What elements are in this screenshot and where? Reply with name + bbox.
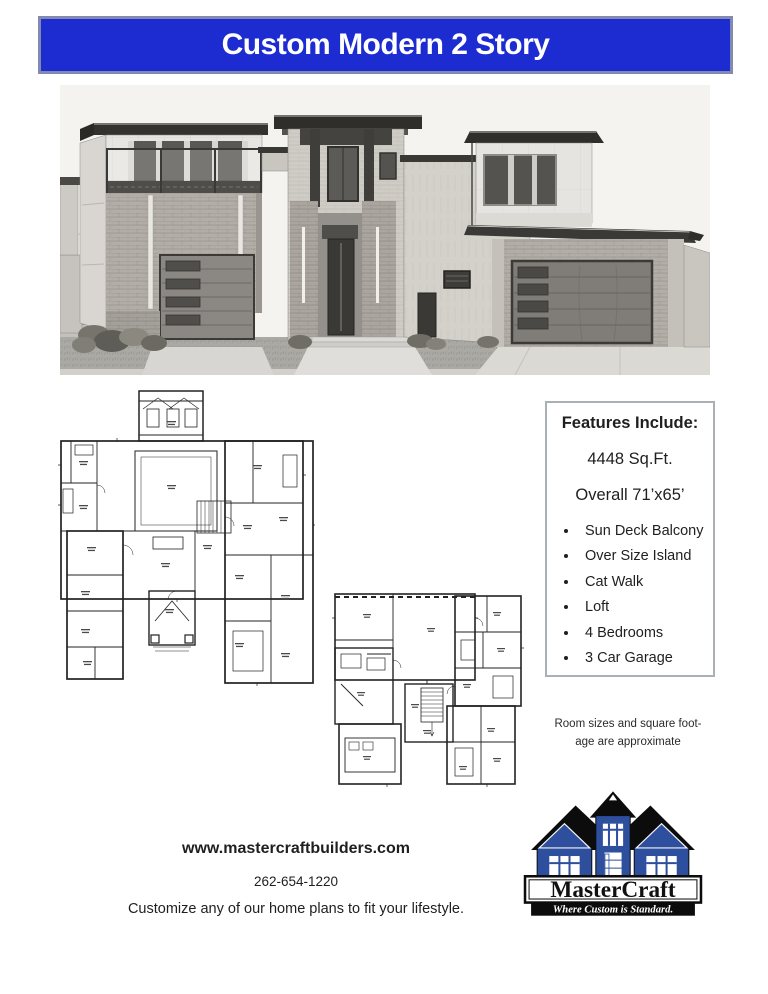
- balcony-railing: [106, 149, 262, 193]
- right-upper-story: [464, 131, 604, 227]
- feature-item: Over Size Island: [579, 549, 705, 565]
- garage-apron-left: [142, 347, 274, 375]
- house-rendering-image: [60, 85, 710, 375]
- logo-house-icon: [531, 791, 695, 882]
- feature-item: 3 Car Garage: [579, 651, 705, 667]
- tagline: Customize any of our home plans to fit y…: [96, 901, 496, 917]
- entry-door: [328, 239, 354, 335]
- feature-item: 4 Bedrooms: [579, 626, 705, 642]
- features-panel: Features Include: 4448 Sq.Ft. Overall 71…: [545, 401, 715, 677]
- features-list: Sun Deck Balcony Over Size Island Cat Wa…: [555, 524, 705, 667]
- website-text: www.mastercraftbuilders.com: [96, 840, 496, 858]
- logo-name-text: MasterCraft: [550, 877, 675, 903]
- front-walk: [294, 347, 432, 375]
- first-floor-plan-image: [57, 385, 315, 690]
- flyer-page: { "banner": { "title": "Custom Modern 2 …: [0, 0, 768, 994]
- overall-dimensions: Overall 71’x65’: [555, 486, 705, 505]
- left-wing: [60, 123, 268, 339]
- feature-item: Cat Walk: [579, 575, 705, 591]
- mastercraft-logo: MasterCraft Where Custom is Standard.: [523, 786, 703, 918]
- logo-slogan-text: Where Custom is Standard.: [553, 905, 673, 916]
- garage-wing: [464, 225, 710, 347]
- double-garage-door: [512, 261, 652, 343]
- phone-number: 262-654-1220: [96, 874, 496, 889]
- second-floor-plan-image: [327, 588, 527, 788]
- contact-block: www.mastercraftbuilders.com 262-654-1220…: [96, 840, 496, 917]
- left-garage-door: [160, 255, 254, 339]
- logo-slogan-bar: Where Custom is Standard.: [531, 903, 695, 916]
- feature-item: Loft: [579, 600, 705, 616]
- porch-column: [310, 129, 320, 207]
- page-title: Custom Modern 2 Story: [222, 28, 550, 62]
- plan-annotation-marks: [79, 421, 290, 665]
- service-door: [418, 293, 436, 337]
- feature-item: Sun Deck Balcony: [579, 524, 705, 540]
- note-line-1: Room sizes and square foot-: [554, 718, 701, 730]
- title-banner: Custom Modern 2 Story: [38, 16, 733, 74]
- room-size-note: Room sizes and square foot- age are appr…: [530, 716, 726, 752]
- note-line-2: age are approximate: [575, 736, 680, 748]
- porch-column: [364, 129, 374, 207]
- logo-nameplate: MasterCraft: [525, 876, 701, 903]
- square-footage: 4448 Sq.Ft.: [555, 450, 705, 469]
- features-title: Features Include:: [555, 414, 705, 433]
